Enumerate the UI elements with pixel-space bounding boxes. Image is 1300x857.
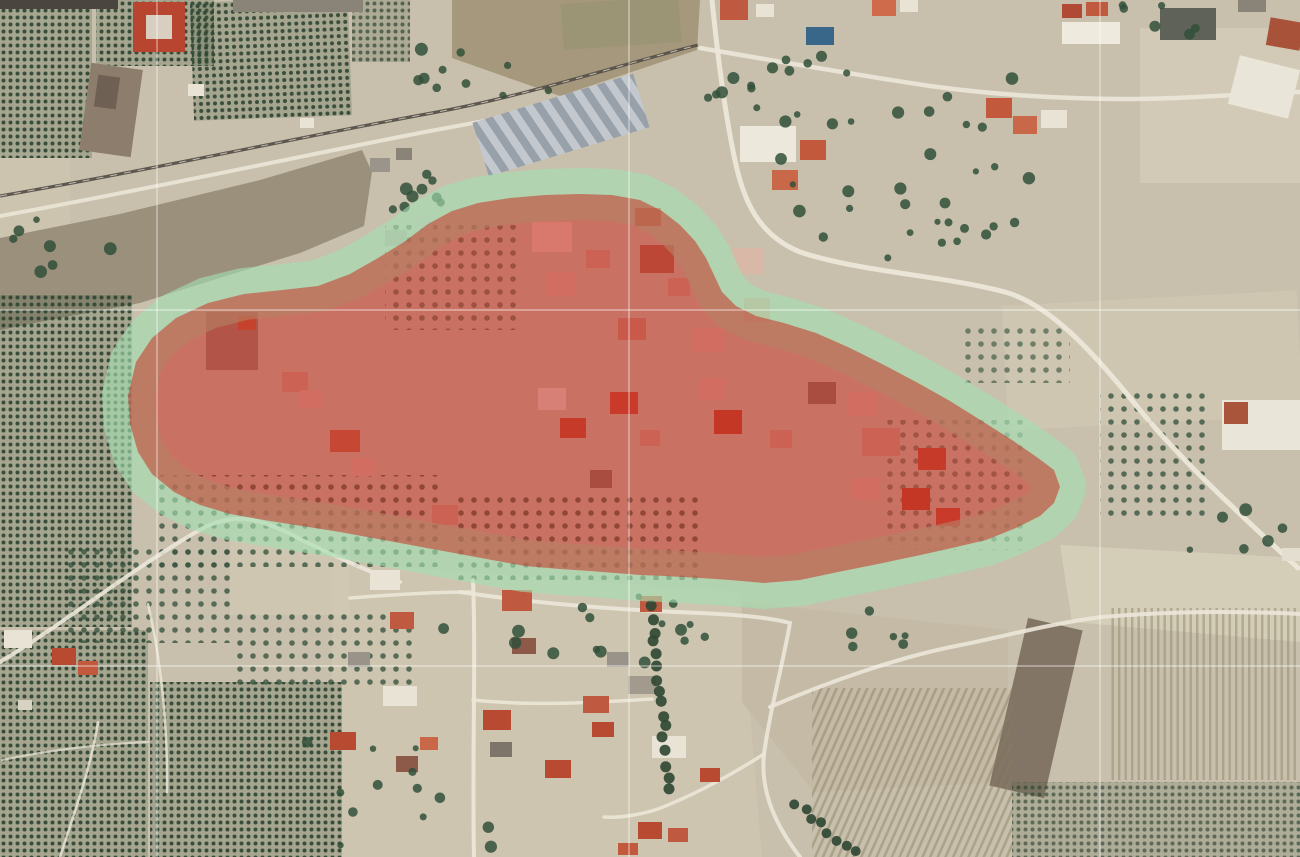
tree-row-tree (657, 731, 668, 742)
tree (302, 737, 313, 748)
tree (1217, 512, 1228, 523)
tree (775, 153, 787, 165)
tree (413, 784, 422, 793)
tree (408, 768, 416, 776)
tree-row-tree (664, 783, 675, 794)
tree (33, 216, 40, 223)
building (800, 140, 826, 160)
tree (934, 219, 940, 225)
building (502, 590, 532, 611)
tree (512, 625, 525, 638)
tree (991, 163, 998, 170)
tree-row-tree (789, 799, 799, 809)
tree (675, 624, 687, 636)
tree (438, 623, 449, 634)
tree (892, 106, 904, 118)
tree-row-tree (806, 814, 816, 824)
tree (846, 205, 853, 212)
tree (34, 265, 47, 278)
orchard-patch (190, 0, 352, 121)
tree (924, 148, 936, 160)
tree (827, 118, 838, 129)
tree (767, 62, 778, 73)
building (720, 0, 748, 20)
orchard-patch (0, 0, 92, 158)
tree (9, 235, 17, 243)
building (370, 570, 400, 590)
tree (44, 240, 56, 252)
tree-row-tree (648, 635, 659, 646)
building (607, 652, 629, 667)
orchard-patch (1012, 782, 1300, 857)
tree (747, 82, 755, 90)
tree (898, 639, 908, 649)
building (18, 700, 32, 710)
tree (1187, 547, 1193, 553)
building (592, 722, 614, 737)
satellite-canvas (0, 0, 1300, 857)
building (420, 737, 438, 750)
building (390, 612, 414, 629)
building (330, 732, 356, 750)
tree (1006, 72, 1019, 85)
tree (794, 111, 801, 118)
tree (701, 633, 709, 641)
building (900, 0, 918, 12)
tree-row-tree (832, 836, 842, 846)
tree (348, 807, 358, 817)
tree (499, 92, 506, 99)
building (1086, 2, 1108, 16)
tree (716, 86, 728, 98)
tree (578, 603, 587, 612)
road (473, 580, 474, 857)
tree-row-tree (660, 761, 671, 772)
tree (943, 92, 953, 102)
tree (894, 182, 906, 194)
tree-row-tree (648, 614, 659, 625)
building (52, 648, 76, 665)
tree-row-tree (646, 600, 657, 611)
tree-row-tree (664, 773, 675, 784)
orchard-patch (960, 325, 1070, 383)
tree-row-tree (660, 745, 671, 756)
tree (435, 793, 446, 804)
building (4, 630, 32, 648)
tree (779, 115, 791, 127)
building (668, 828, 688, 842)
tree (1184, 29, 1195, 40)
building (370, 158, 390, 172)
building (1224, 402, 1248, 424)
tree (439, 66, 447, 74)
tree (890, 633, 897, 640)
tree-row-tree (822, 828, 832, 838)
tree (585, 613, 594, 622)
tree (981, 229, 991, 239)
tree (1010, 218, 1019, 227)
tree (963, 121, 970, 128)
tree (1239, 503, 1252, 516)
building (348, 652, 370, 667)
building (700, 768, 720, 782)
tree (938, 239, 946, 247)
tree (504, 62, 511, 69)
tree (842, 185, 854, 197)
building (618, 843, 638, 855)
orchard-patch (232, 610, 412, 688)
tree (819, 232, 828, 241)
tree (1149, 21, 1160, 32)
building (1013, 116, 1037, 134)
building (872, 0, 896, 16)
tree (104, 242, 117, 255)
tree (14, 225, 25, 236)
tree-row-tree (656, 696, 667, 707)
tree (924, 106, 935, 117)
building (1238, 0, 1266, 12)
vineyard-patch (1108, 608, 1300, 780)
tree (953, 238, 961, 246)
tree (419, 73, 430, 84)
orchard-patch (150, 682, 342, 857)
tree (1023, 172, 1035, 184)
building (1041, 110, 1067, 128)
building (638, 822, 662, 839)
tree (884, 254, 891, 261)
tree-row-tree (816, 817, 826, 827)
tree (428, 176, 436, 184)
building (94, 75, 120, 110)
building (490, 742, 512, 757)
tree (509, 637, 521, 649)
tree (1158, 2, 1165, 9)
tree (989, 222, 997, 230)
field-patch-olive-green-patch (561, 0, 682, 50)
tree (753, 104, 760, 111)
tree (373, 780, 383, 790)
building (396, 148, 412, 160)
tree (973, 168, 979, 174)
tree (803, 59, 812, 68)
tree (545, 87, 552, 94)
tree-row-tree (802, 804, 812, 814)
tree (816, 51, 827, 62)
building (1062, 4, 1082, 18)
building (583, 696, 609, 713)
tree (790, 181, 796, 187)
tree (843, 69, 850, 76)
tree (848, 118, 855, 125)
orchard-patch (1100, 390, 1206, 522)
tree (907, 229, 914, 236)
tree (1239, 544, 1249, 554)
tree (940, 198, 951, 209)
tree (462, 79, 471, 88)
tree (680, 637, 688, 645)
vineyard-patch (812, 688, 1012, 857)
building (1062, 22, 1120, 44)
tree (417, 184, 428, 195)
building (383, 686, 417, 706)
building (806, 27, 834, 45)
building (78, 661, 98, 675)
tree-row-tree (651, 675, 662, 686)
tree-row-tree (842, 841, 852, 851)
tree (337, 789, 345, 797)
tree (687, 621, 694, 628)
tree (865, 606, 874, 615)
building (483, 710, 511, 730)
tree (902, 632, 909, 639)
tree (389, 205, 397, 213)
tree-row-tree (851, 846, 861, 856)
tree (848, 642, 857, 651)
tree (413, 745, 419, 751)
tree-row-tree (654, 686, 665, 697)
tree (782, 56, 791, 65)
tree-row-tree (660, 720, 671, 731)
building (1282, 548, 1300, 561)
satellite-map[interactable] (0, 0, 1300, 857)
tree (846, 628, 857, 639)
tree (727, 72, 739, 84)
tree (485, 841, 497, 853)
field-patch-village-pale-field (332, 562, 762, 857)
tree (547, 647, 559, 659)
tree (793, 205, 806, 218)
tree (704, 94, 712, 102)
tree (945, 218, 953, 226)
tree (337, 842, 343, 848)
tree (420, 813, 427, 820)
tree-row-tree (651, 648, 662, 659)
building (0, 0, 118, 9)
tree (595, 646, 607, 658)
tree (48, 260, 58, 270)
tree (900, 199, 910, 209)
tree (659, 620, 666, 627)
building (545, 760, 571, 778)
building (300, 118, 314, 128)
tree (432, 84, 441, 93)
building (188, 84, 204, 96)
tree (483, 822, 494, 833)
building (756, 4, 774, 17)
tree (1119, 1, 1127, 9)
tree (960, 224, 969, 233)
tree (1262, 535, 1274, 547)
tree (978, 123, 987, 132)
tree (785, 66, 795, 76)
tree (370, 746, 376, 752)
building (233, 0, 363, 12)
tree (1278, 523, 1288, 533)
building (1266, 17, 1300, 50)
tree (415, 43, 428, 56)
building (740, 126, 796, 162)
building (986, 98, 1012, 118)
tree (457, 48, 465, 56)
building (146, 15, 172, 39)
